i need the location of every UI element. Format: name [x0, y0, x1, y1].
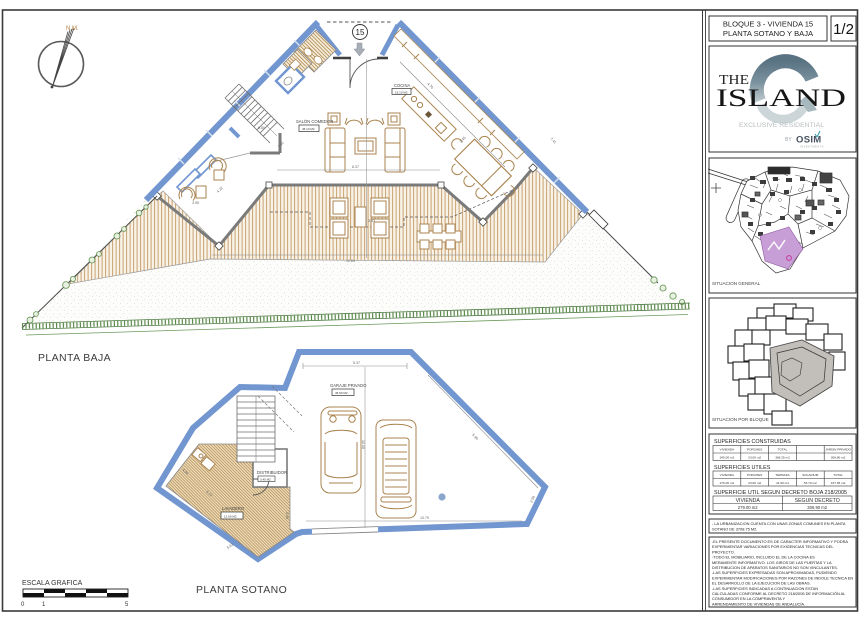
svg-text:23.00 m2: 23.00 m2	[748, 455, 761, 459]
svg-text:SUPERFICIE UTIL SEGUN DECRETO: SUPERFICIE UTIL SEGUN DECRETO BOJA 218/2…	[714, 490, 847, 496]
svg-text:368.25 m2: 368.25 m2	[775, 455, 790, 459]
svg-text:306.90 m2: 306.90 m2	[807, 505, 827, 510]
svg-text:SOLARIUM: SOLARIUM	[802, 473, 819, 477]
svg-text:45.10 M2: 45.10 M2	[302, 127, 315, 131]
svg-text:SUPERFICIES CONSTRUIDAS: SUPERFICIES CONSTRUIDAS	[714, 439, 791, 445]
svg-text:SUPERFICIES UTILES: SUPERFICIES UTILES	[714, 465, 771, 471]
svg-text:SITUACION GENERAL: SITUACION GENERAL	[712, 281, 761, 286]
svg-text:INVESTMENTS: INVESTMENTS	[800, 145, 824, 149]
svg-text:PLANTA SOTANO Y BAJA: PLANTA SOTANO Y BAJA	[723, 29, 814, 38]
svg-text:3.06: 3.06	[285, 512, 289, 519]
svg-text:3.40 M2: 3.40 M2	[260, 478, 271, 482]
svg-text:SALÓN COMEDOR: SALÓN COMEDOR	[296, 119, 333, 124]
svg-text:ESCALA GRAFICA: ESCALA GRAFICA	[22, 580, 83, 587]
svg-text:BY: BY	[785, 137, 792, 143]
svg-text:JARDIN PRIVADO: JARDIN PRIVADO	[825, 448, 851, 452]
svg-text:PLANTA BAJA: PLANTA BAJA	[38, 352, 111, 364]
svg-text:0.80: 0.80	[258, 126, 265, 130]
svg-text:12.64: 12.64	[346, 259, 355, 263]
svg-text:46.50 M2: 46.50 M2	[335, 391, 348, 395]
svg-text:BLOQUE 3 - VIVIENDA 15: BLOQUE 3 - VIVIENDA 15	[723, 20, 813, 29]
svg-text:12.60 M2: 12.60 M2	[224, 515, 237, 519]
svg-text:10.08: 10.08	[361, 440, 365, 449]
svg-text:PLANTA SOTANO: PLANTA SOTANO	[196, 584, 287, 596]
svg-text:VIVIENDA: VIVIENDA	[720, 448, 735, 452]
svg-text:VIVIENDA: VIVIENDA	[736, 498, 761, 504]
svg-text:ARRENDAMIENTO DE VIVIENDAS DE: ARRENDAMIENTO DE VIVIENDAS DE ANDALUCÍA.	[712, 601, 805, 606]
svg-text:23.00 m2: 23.00 m2	[748, 481, 761, 485]
svg-text:LAVADERO: LAVADERO	[222, 506, 245, 511]
svg-text:SEGUN DECRETO: SEGUN DECRETO	[795, 498, 840, 504]
svg-text:15.10 M2: 15.10 M2	[395, 91, 408, 95]
svg-text:5.37: 5.37	[353, 361, 360, 365]
svg-text:VIVIENDA: VIVIENDA	[720, 473, 735, 477]
svg-text:3.95: 3.95	[192, 201, 199, 205]
svg-text:1/2: 1/2	[833, 21, 854, 38]
svg-text:SITUACION POR BLOQUE: SITUACION POR BLOQUE	[712, 417, 769, 422]
svg-text:8.37: 8.37	[352, 165, 359, 169]
svg-text:ISLAND: ISLAND	[716, 85, 846, 112]
svg-text:N.M.: N.M.	[66, 26, 79, 32]
svg-text:GARAJE PRIVADO: GARAJE PRIVADO	[330, 383, 367, 388]
svg-text:306.80 m2: 306.80 m2	[831, 455, 846, 459]
svg-text:- LA URBANIZACION CUENTA CON U: - LA URBANIZACION CUENTA CON UNAS ZONAS …	[712, 521, 846, 526]
svg-text:DISTRIBUIDOR: DISTRIBUIDOR	[257, 470, 287, 475]
svg-text:10.79: 10.79	[420, 516, 429, 520]
svg-text:PORCHES: PORCHES	[747, 473, 762, 477]
svg-text:TERRAZA: TERRAZA	[775, 473, 790, 477]
svg-text:279.00 m2: 279.00 m2	[720, 481, 735, 485]
svg-text:53.70 m2: 53.70 m2	[804, 481, 817, 485]
svg-text:41.50 m2: 41.50 m2	[776, 481, 789, 485]
svg-text:EXCLUSIVE RESIDENTIAL: EXCLUSIVE RESIDENTIAL	[739, 122, 825, 129]
svg-text:279.00 m2: 279.00 m2	[738, 505, 758, 510]
svg-text:PORCHES: PORCHES	[747, 448, 762, 452]
svg-text:15: 15	[356, 28, 365, 37]
svg-text:COCINA: COCINA	[394, 83, 410, 88]
svg-text:SOTANO DE 3708.75 M2.: SOTANO DE 3708.75 M2.	[712, 527, 757, 532]
svg-text:TOTAL: TOTAL	[778, 448, 788, 452]
svg-text:3.43: 3.43	[368, 219, 375, 223]
svg-text:TOTAL: TOTAL	[833, 473, 843, 477]
svg-text:345.00 m2: 345.00 m2	[720, 455, 735, 459]
svg-text:437.95 m2: 437.95 m2	[831, 481, 846, 485]
